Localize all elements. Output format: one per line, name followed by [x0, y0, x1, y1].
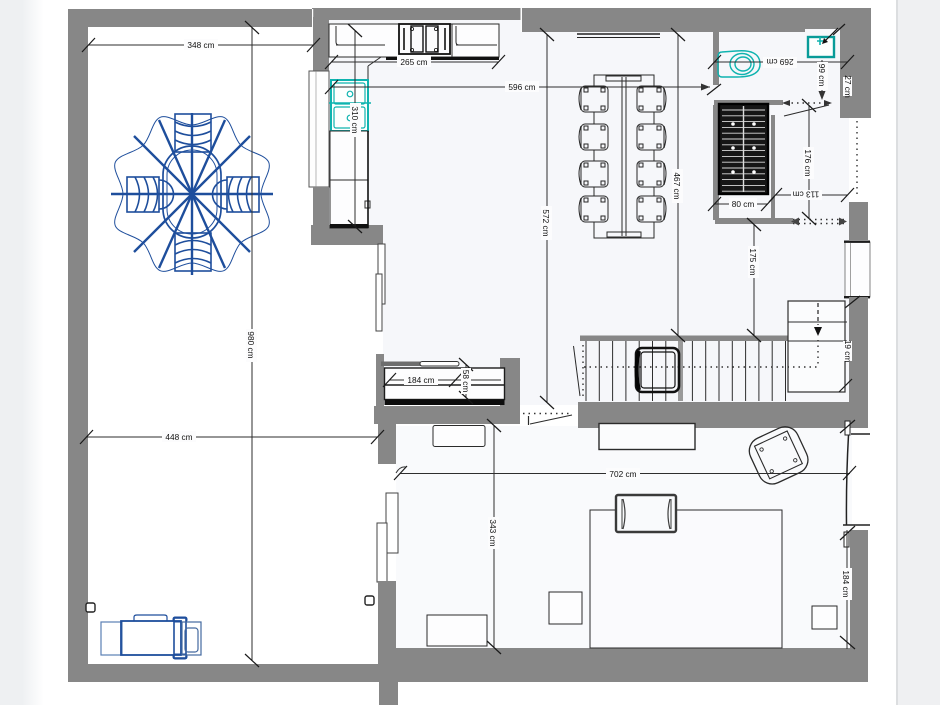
svg-text:184 cm: 184 cm: [407, 375, 434, 385]
svg-text:184 cm: 184 cm: [841, 570, 851, 597]
svg-text:99 cm: 99 cm: [817, 64, 827, 87]
svg-text:58 cm: 58 cm: [461, 370, 471, 393]
svg-text:175 cm: 175 cm: [748, 248, 758, 275]
svg-text:343 cm: 343 cm: [488, 519, 498, 546]
svg-text:310 cm: 310 cm: [350, 106, 360, 133]
svg-text:980 cm: 980 cm: [246, 331, 256, 358]
svg-text:176 cm: 176 cm: [803, 149, 813, 176]
svg-text:702 cm: 702 cm: [609, 469, 636, 479]
svg-text:265 cm: 265 cm: [400, 57, 427, 67]
svg-text:572 cm: 572 cm: [541, 209, 551, 236]
svg-text:27 cm: 27 cm: [843, 75, 853, 98]
svg-text:269 cm: 269 cm: [766, 57, 793, 67]
svg-text:348 cm: 348 cm: [187, 40, 214, 50]
svg-text:19 cm: 19 cm: [843, 340, 853, 363]
svg-text:448 cm: 448 cm: [165, 432, 192, 442]
svg-text:596 cm: 596 cm: [508, 82, 535, 92]
svg-text:467 cm: 467 cm: [672, 172, 682, 199]
svg-text:113 cm: 113 cm: [793, 190, 820, 200]
svg-text:80 cm: 80 cm: [732, 199, 755, 209]
